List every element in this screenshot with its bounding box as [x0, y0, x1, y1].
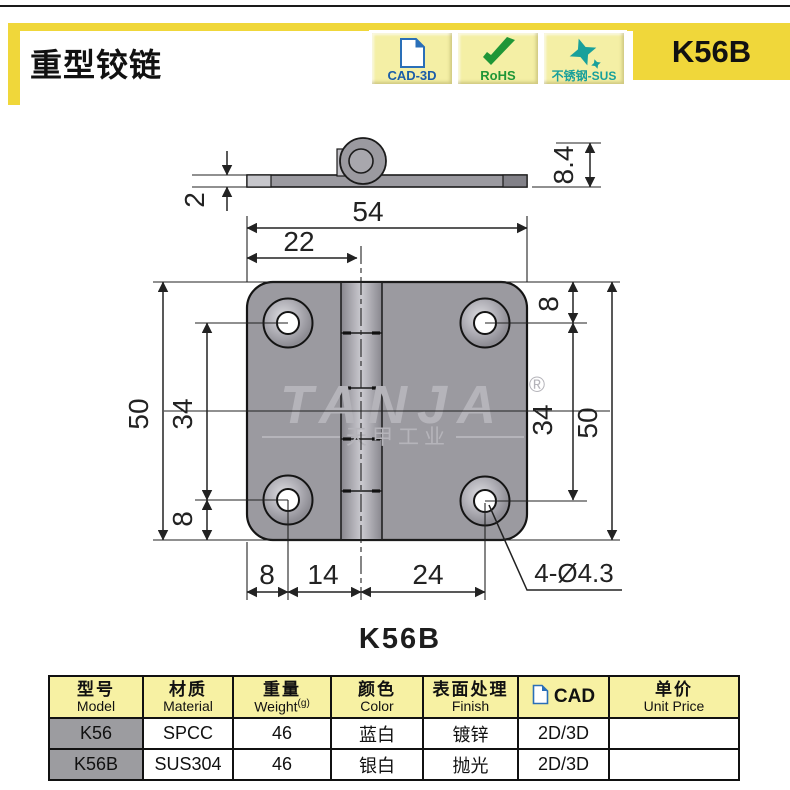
dim-right-hole-span-label: 34 — [527, 404, 558, 435]
table-header-row: 型号 Model 材质 Material 重量 Weight(g) 颜色 Col… — [49, 676, 739, 718]
table-row: K56 SPCC 46 蓝白 镀锌 2D/3D — [49, 718, 739, 749]
dim-thickness-label: 2 — [179, 192, 210, 208]
dim-bottom-pin-to-hole-label: 24 — [412, 559, 443, 590]
cell-color-k56b: 银白 — [331, 749, 423, 780]
col-header-color: 颜色 Color — [331, 676, 423, 718]
col-price-zh: 单价 — [610, 680, 738, 700]
drawing-caption: K56B — [359, 623, 441, 655]
cell-model-k56b: K56B — [49, 749, 143, 780]
cell-price-k56b — [609, 749, 739, 780]
spec-table: 型号 Model 材质 Material 重量 Weight(g) 颜色 Col… — [48, 675, 740, 781]
col-model-zh: 型号 — [50, 680, 142, 700]
col-header-material: 材质 Material — [143, 676, 233, 718]
technical-drawing: TANJA ® 天甲工业 — [0, 0, 790, 675]
col-weight-zh: 重量 — [234, 680, 330, 700]
col-cad-label: CAD — [554, 686, 595, 708]
col-model-en: Model — [50, 699, 142, 714]
dim-bottom-hole-to-pin-label: 14 — [307, 559, 338, 590]
cell-color-k56: 蓝白 — [331, 718, 423, 749]
cell-cad-k56[interactable]: 2D/3D — [518, 718, 609, 749]
catalog-page: 重型铰链 CAD-3D RoHS — [0, 0, 790, 790]
col-color-zh: 颜色 — [332, 680, 422, 700]
hinge-profile-view — [247, 138, 527, 187]
dim-width-label: 54 — [352, 196, 383, 227]
cell-weight-k56b: 46 — [233, 749, 331, 780]
dim-profile-height-label: 8.4 — [548, 146, 579, 185]
cell-price-k56 — [609, 718, 739, 749]
cell-material-k56: SPCC — [143, 718, 233, 749]
cell-model-k56: K56 — [49, 718, 143, 749]
registered-mark: ® — [529, 372, 545, 397]
cell-material-k56b: SUS304 — [143, 749, 233, 780]
dim-bottom-edge-label: 8 — [259, 559, 275, 590]
col-material-zh: 材质 — [144, 680, 232, 700]
col-header-cad: CAD — [518, 676, 609, 718]
col-finish-en: Finish — [424, 699, 517, 714]
col-header-weight: 重量 Weight(g) — [233, 676, 331, 718]
cell-finish-k56: 镀锌 — [423, 718, 518, 749]
col-material-en: Material — [144, 699, 232, 714]
col-weight-en: Weight(g) — [234, 699, 330, 714]
col-color-en: Color — [332, 699, 422, 714]
col-price-en: Unit Price — [610, 699, 738, 714]
watermark-sub: 天甲工业 — [346, 426, 450, 449]
dim-left-hole-span-label: 34 — [167, 398, 198, 429]
col-header-finish: 表面处理 Finish — [423, 676, 518, 718]
dim-left-bottom-edge-label: 8 — [167, 511, 198, 527]
table-row: K56B SUS304 46 银白 抛光 2D/3D — [49, 749, 739, 780]
dim-left-height-label: 50 — [123, 398, 154, 429]
col-header-price: 单价 Unit Price — [609, 676, 739, 718]
dim-right-height-label: 50 — [572, 407, 603, 438]
cell-weight-k56: 46 — [233, 718, 331, 749]
document-icon — [532, 684, 549, 711]
col-finish-zh: 表面处理 — [424, 680, 517, 700]
cell-cad-k56b[interactable]: 2D/3D — [518, 749, 609, 780]
dim-right-top-edge-label: 8 — [533, 296, 564, 312]
hole-callout-label: 4-Ø4.3 — [534, 558, 614, 588]
dim-pin-offset-label: 22 — [283, 226, 314, 257]
col-header-model: 型号 Model — [49, 676, 143, 718]
cell-finish-k56b: 抛光 — [423, 749, 518, 780]
